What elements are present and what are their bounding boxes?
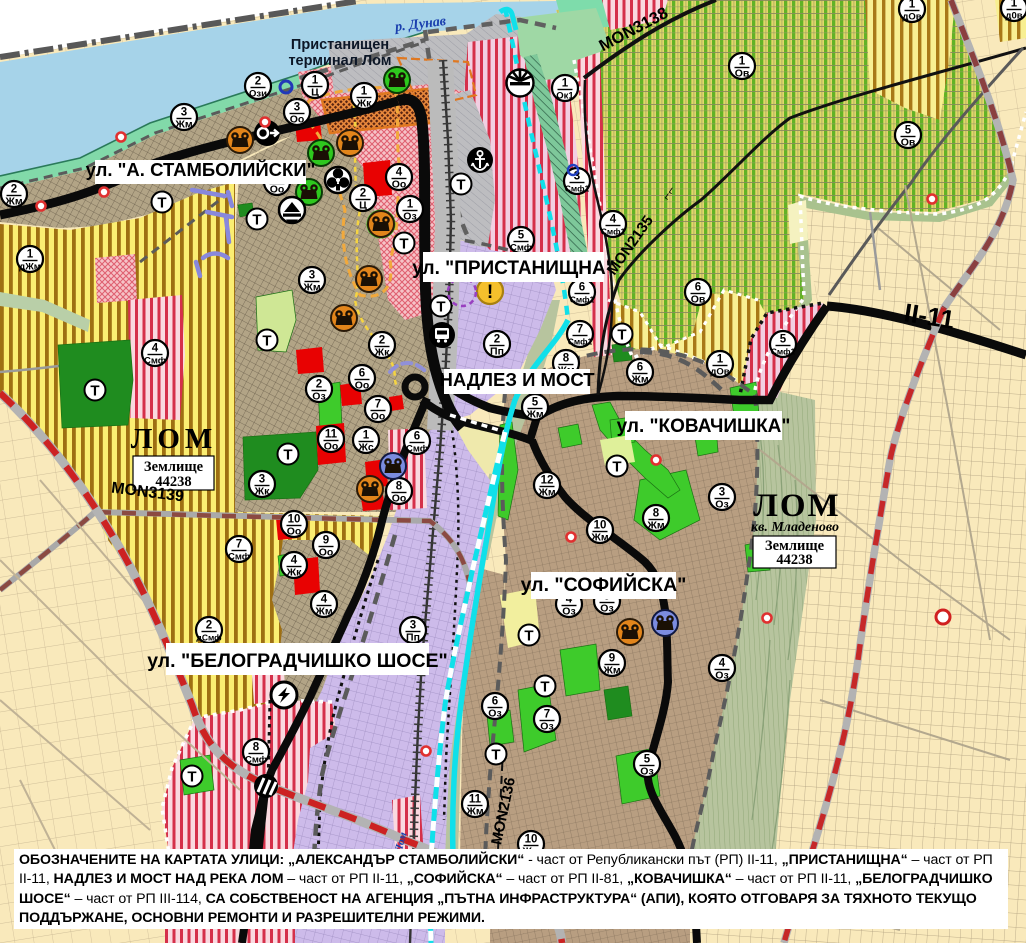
svg-text:Т: Т bbox=[262, 333, 271, 350]
svg-text:ул. "КОВАЧИШКА": ул. "КОВАЧИШКА" bbox=[617, 416, 791, 437]
svg-text:4: 4 bbox=[610, 214, 617, 226]
svg-text:Т: Т bbox=[612, 459, 621, 476]
svg-text:10: 10 bbox=[288, 514, 301, 526]
svg-text:6: 6 bbox=[414, 431, 420, 443]
svg-text:ул. "ПРИСТАНИЩНА": ул. "ПРИСТАНИЩНА" bbox=[412, 258, 615, 279]
svg-text:1: 1 bbox=[909, 0, 916, 11]
svg-text:Жк: Жк bbox=[254, 486, 270, 498]
svg-text:44238: 44238 bbox=[776, 552, 812, 568]
svg-text:7: 7 bbox=[544, 709, 550, 721]
svg-text:6: 6 bbox=[492, 696, 498, 708]
svg-text:4: 4 bbox=[291, 555, 298, 567]
svg-text:1: 1 bbox=[27, 249, 34, 261]
svg-text:Т: Т bbox=[617, 327, 626, 344]
svg-text:1: 1 bbox=[1011, 0, 1018, 10]
svg-text:Жм: Жм bbox=[465, 806, 483, 818]
svg-text:Оз: Оз bbox=[640, 766, 653, 778]
svg-text:Ов: Ов bbox=[691, 294, 706, 306]
svg-text:Оо: Оо bbox=[324, 441, 339, 453]
svg-text:2: 2 bbox=[316, 379, 322, 391]
svg-text:Жм: Жм bbox=[630, 374, 648, 386]
svg-text:Оо: Оо bbox=[355, 380, 370, 392]
svg-text:3: 3 bbox=[309, 270, 315, 282]
svg-text:2: 2 bbox=[360, 188, 366, 200]
svg-text:кв. Младеново: кв. Младеново bbox=[751, 520, 839, 535]
svg-text:Жс: Жс bbox=[357, 442, 373, 454]
svg-text:Жм: Жм bbox=[4, 196, 22, 208]
svg-text:ЛОМ: ЛОМ bbox=[753, 488, 840, 524]
svg-text:Т: Т bbox=[90, 383, 99, 400]
svg-text:Смф: Смф bbox=[245, 755, 267, 766]
svg-text:терминал Лом: терминал Лом bbox=[288, 53, 391, 69]
svg-text:дОв: дОв bbox=[902, 12, 921, 23]
svg-text:дОв: дОв bbox=[710, 367, 729, 378]
svg-text:Смф: Смф bbox=[228, 552, 250, 563]
svg-text:Жк: Жк bbox=[356, 98, 372, 110]
svg-text:5: 5 bbox=[644, 754, 651, 766]
svg-text:Жм: Жм bbox=[646, 520, 664, 532]
svg-text:1: 1 bbox=[361, 86, 368, 98]
svg-text:6: 6 bbox=[637, 362, 643, 374]
svg-text:Т: Т bbox=[252, 212, 261, 229]
svg-text:Оо: Оо bbox=[392, 493, 407, 505]
svg-text:10: 10 bbox=[525, 834, 538, 846]
svg-text:1: 1 bbox=[717, 354, 724, 366]
svg-text:Пп: Пп bbox=[406, 632, 420, 644]
svg-text:3: 3 bbox=[294, 102, 300, 114]
svg-text:ЛОМ: ЛОМ bbox=[131, 423, 218, 455]
svg-text:Оз: Оз bbox=[488, 708, 501, 720]
svg-text:10: 10 bbox=[594, 520, 607, 532]
svg-text:Оо: Оо bbox=[270, 184, 285, 196]
svg-text:Смф: Смф bbox=[510, 243, 532, 254]
svg-text:Т: Т bbox=[540, 679, 549, 696]
svg-text:3: 3 bbox=[410, 620, 416, 632]
svg-text:Смф1: Смф1 bbox=[771, 347, 796, 357]
svg-text:Т: Т bbox=[399, 236, 408, 253]
svg-text:дСмф: дСмф bbox=[196, 633, 222, 643]
svg-text:Смф1: Смф1 bbox=[565, 184, 590, 194]
svg-text:Ози: Ози bbox=[249, 89, 267, 100]
svg-text:6: 6 bbox=[695, 282, 701, 294]
svg-text:5: 5 bbox=[532, 397, 539, 409]
svg-text:Оо: Оо bbox=[319, 547, 334, 559]
svg-text:дЖм: дЖм bbox=[19, 262, 41, 273]
svg-text:6: 6 bbox=[579, 282, 585, 294]
svg-text:Оз: Оз bbox=[715, 499, 728, 511]
svg-text:11: 11 bbox=[469, 794, 482, 806]
svg-text:Ок1: Ок1 bbox=[556, 91, 574, 102]
svg-text:1: 1 bbox=[363, 430, 370, 442]
svg-text:Т: Т bbox=[491, 747, 500, 764]
svg-text:Ц: Ц bbox=[359, 200, 367, 212]
svg-text:Пп: Пп bbox=[490, 346, 504, 358]
svg-text:!: ! bbox=[487, 282, 493, 303]
svg-text:Оо: Оо bbox=[392, 179, 407, 191]
svg-text:Жм: Жм bbox=[174, 119, 192, 131]
svg-text:НАДЛЕЗ И МОСТ: НАДЛЕЗ И МОСТ bbox=[439, 369, 595, 390]
svg-text:Оз: Оз bbox=[312, 391, 325, 403]
svg-text:9: 9 bbox=[609, 653, 615, 665]
svg-text:Оо: Оо bbox=[290, 114, 305, 126]
svg-text:4: 4 bbox=[719, 658, 726, 670]
svg-text:8: 8 bbox=[396, 481, 403, 493]
svg-text:Ов: Ов bbox=[735, 68, 750, 80]
svg-text:Т: Т bbox=[187, 769, 196, 786]
svg-text:д0в: д0в bbox=[1005, 11, 1022, 22]
svg-text:8: 8 bbox=[653, 508, 660, 520]
svg-text:4: 4 bbox=[152, 343, 159, 355]
svg-text:Жк: Жк bbox=[374, 347, 390, 359]
svg-text:7: 7 bbox=[375, 399, 381, 411]
svg-text:Т: Т bbox=[436, 299, 445, 316]
svg-text:1: 1 bbox=[312, 75, 319, 87]
svg-text:Жм: Жм bbox=[537, 487, 555, 499]
svg-text:Т: Т bbox=[283, 447, 292, 464]
svg-text:11: 11 bbox=[325, 429, 338, 441]
svg-text:Т: Т bbox=[456, 177, 465, 194]
svg-text:2: 2 bbox=[11, 184, 17, 196]
svg-text:2: 2 bbox=[379, 335, 385, 347]
svg-text:5: 5 bbox=[518, 230, 525, 242]
svg-text:3: 3 bbox=[719, 487, 725, 499]
svg-text:2: 2 bbox=[206, 620, 212, 632]
svg-text:ул. "БЕЛОГРАДЧИШКО ШОСЕ": ул. "БЕЛОГРАДЧИШКО ШОСЕ" bbox=[147, 650, 448, 672]
svg-text:4: 4 bbox=[396, 167, 403, 179]
svg-text:7: 7 bbox=[236, 539, 242, 551]
svg-text:Оз: Оз bbox=[562, 606, 575, 618]
svg-text:12: 12 bbox=[541, 475, 554, 487]
svg-text:Землище: Землище bbox=[144, 459, 204, 475]
svg-text:Смф: Смф bbox=[406, 444, 428, 455]
svg-text:Жм: Жм bbox=[525, 409, 543, 421]
svg-text:Смф1: Смф1 bbox=[570, 295, 595, 305]
svg-text:5: 5 bbox=[905, 125, 912, 137]
svg-text:7: 7 bbox=[577, 324, 583, 336]
svg-text:Смф1: Смф1 bbox=[601, 227, 626, 237]
svg-text:8: 8 bbox=[563, 353, 570, 365]
svg-text:5: 5 bbox=[780, 334, 787, 346]
svg-text:Смф1: Смф1 bbox=[568, 337, 593, 347]
svg-text:Т: Т bbox=[157, 195, 166, 212]
svg-text:3: 3 bbox=[181, 107, 187, 119]
svg-text:Оз: Оз bbox=[403, 211, 416, 223]
svg-text:Пристанищен: Пристанищен bbox=[291, 37, 389, 53]
svg-text:Ц: Ц bbox=[311, 87, 319, 99]
svg-text:Оо: Оо bbox=[371, 411, 386, 423]
svg-text:9: 9 bbox=[323, 535, 329, 547]
svg-text:Жм: Жм bbox=[302, 282, 320, 294]
svg-text:2: 2 bbox=[494, 334, 500, 346]
svg-text:ул. "А. СТАМБОЛИЙСКИ": ул. "А. СТАМБОЛИЙСКИ" bbox=[86, 159, 316, 180]
svg-text:Т: Т bbox=[524, 628, 533, 645]
svg-text:6: 6 bbox=[359, 368, 365, 380]
svg-text:Ов: Ов bbox=[901, 137, 916, 149]
svg-text:1: 1 bbox=[562, 78, 569, 90]
svg-text:1: 1 bbox=[407, 199, 414, 211]
svg-text:Смф: Смф bbox=[144, 356, 166, 367]
svg-text:Оз: Оз bbox=[600, 603, 613, 615]
svg-text:Жм: Жм bbox=[602, 665, 620, 677]
svg-text:4: 4 bbox=[321, 594, 328, 606]
svg-text:3: 3 bbox=[259, 474, 265, 486]
svg-text:2: 2 bbox=[255, 76, 261, 88]
svg-text:Жм: Жм bbox=[590, 532, 608, 544]
svg-text:Оз: Оз bbox=[540, 721, 553, 733]
svg-text:Оо: Оо bbox=[287, 526, 302, 538]
svg-text:Жк: Жк bbox=[286, 567, 302, 579]
svg-text:ул. "СОФИЙСКА": ул. "СОФИЙСКА" bbox=[521, 572, 687, 596]
svg-text:1: 1 bbox=[739, 56, 746, 68]
svg-text:Жм: Жм bbox=[314, 606, 332, 618]
svg-text:Оз: Оз bbox=[715, 670, 728, 682]
svg-text:8: 8 bbox=[253, 742, 260, 754]
